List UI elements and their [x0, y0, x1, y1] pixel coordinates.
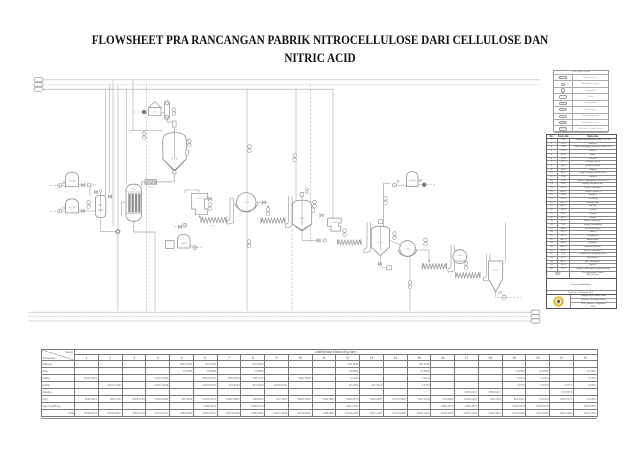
- svg-text:M-130: M-130: [171, 159, 178, 161]
- svg-text:F-114: F-114: [69, 206, 76, 209]
- svg-text:nitr: nitr: [301, 221, 304, 224]
- svg-text:C-330: C-330: [457, 255, 463, 257]
- svg-text:E-117: E-117: [131, 189, 137, 191]
- svg-text:F-240: F-240: [409, 179, 416, 182]
- svg-text:J-111: J-111: [152, 112, 158, 114]
- svg-text:H-210: H-210: [243, 202, 250, 204]
- svg-text:H-320: H-320: [405, 248, 411, 250]
- svg-text:M-310: M-310: [378, 242, 385, 244]
- svg-text:F-230: F-230: [332, 222, 338, 224]
- svg-text:R-220: R-220: [299, 218, 306, 220]
- svg-text:J-119: J-119: [210, 226, 216, 228]
- svg-text:E-116: E-116: [148, 186, 154, 188]
- svg-text:H-340: H-340: [493, 270, 500, 272]
- svg-text:M-115: M-115: [98, 205, 104, 207]
- svg-text:F-118: F-118: [197, 198, 203, 200]
- svg-text:mix: mix: [173, 163, 176, 165]
- svg-text:F-113: F-113: [69, 180, 76, 183]
- svg-text:F-121: F-121: [181, 242, 188, 245]
